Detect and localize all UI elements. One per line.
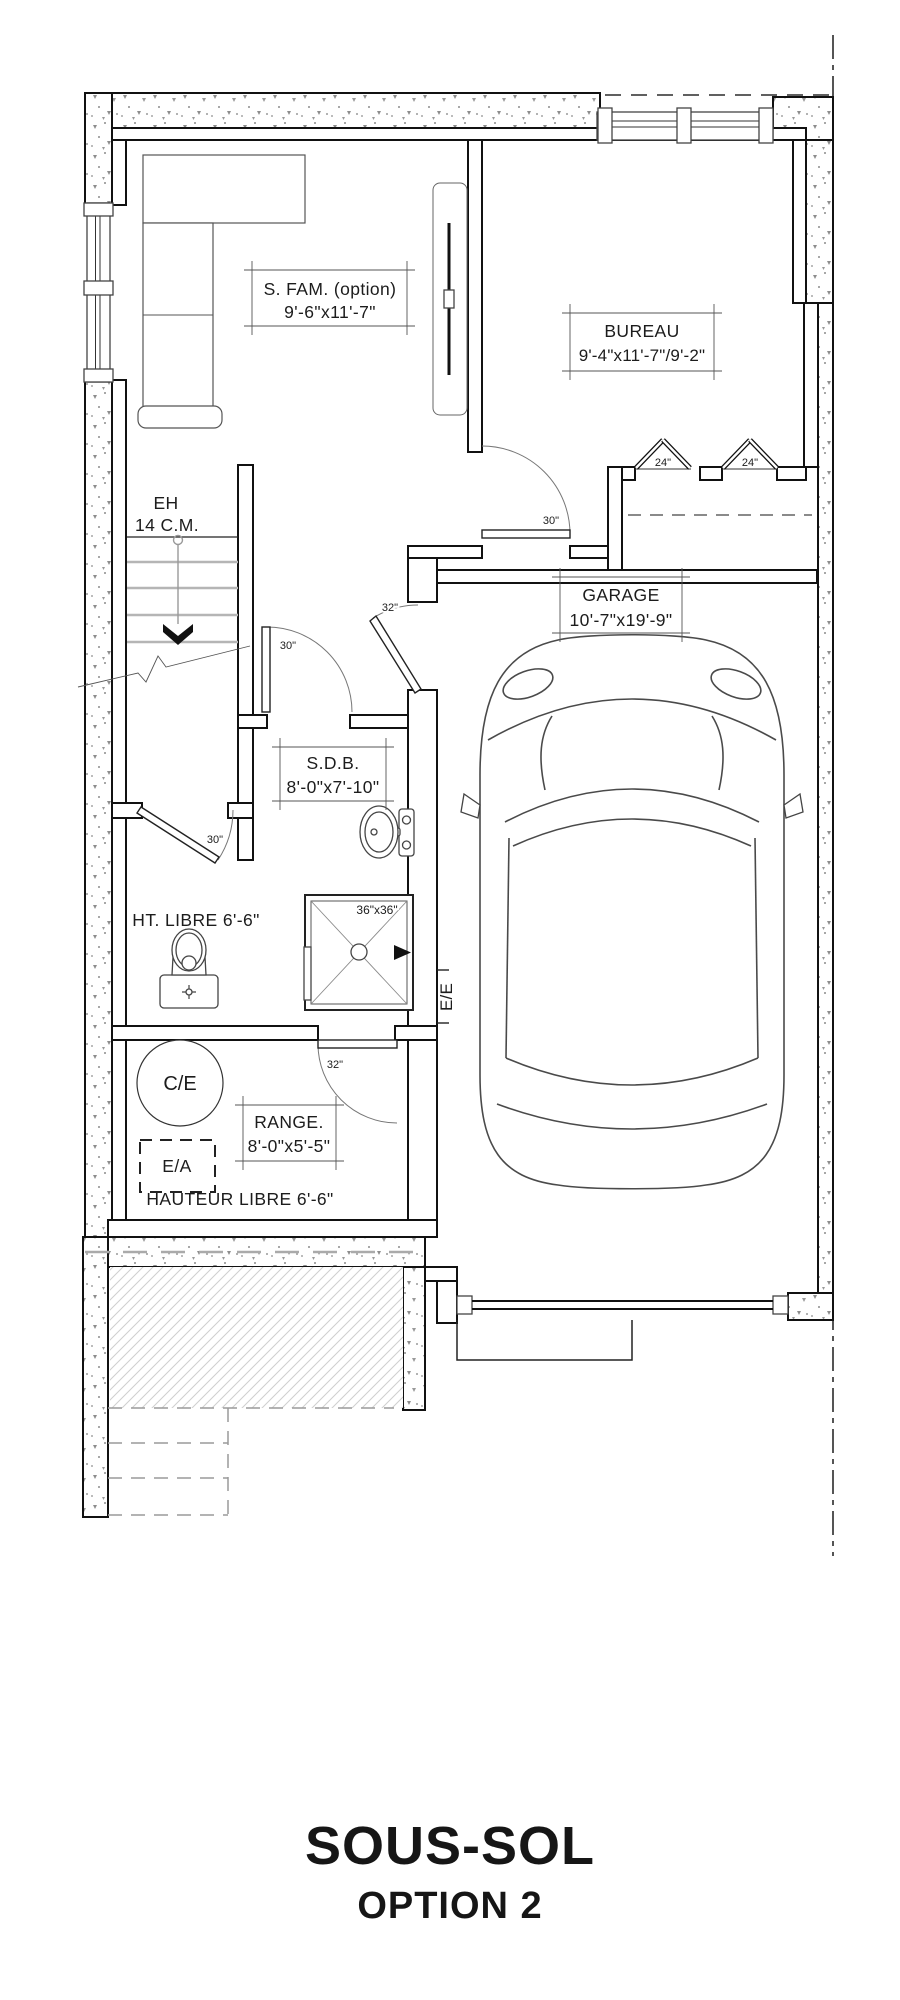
air-exchanger-label: E/A — [162, 1156, 191, 1176]
toilet-nook-door: 30" — [137, 807, 233, 863]
plan-title: SOUS-SOL — [305, 1816, 595, 1876]
label-bureau: BUREAU 9'-4"x11'-7"/9'-2" — [562, 304, 722, 380]
electrical-label: E/E — [437, 983, 456, 1011]
electrical-panel: E/E — [437, 970, 456, 1023]
air-exchanger: E/A — [140, 1140, 215, 1192]
tv-unit — [433, 183, 467, 415]
garage-dims: 10'-7"x19'-9" — [569, 610, 672, 630]
storage-height-label: HAUTEUR LIBRE 6'-6" — [146, 1189, 333, 1209]
garage-entry-door: 32" — [370, 602, 421, 693]
bureau-dims: 9'-4"x11'-7"/9'-2" — [579, 346, 706, 365]
range-name: RANGE. — [254, 1112, 324, 1132]
toilet-door-size: 30" — [207, 834, 223, 846]
closet-door-right-size: 24" — [742, 457, 758, 469]
mirror-left — [461, 794, 480, 818]
water-heater-label: C/E — [163, 1073, 196, 1095]
range-dims: 8'-0"x5'-5" — [248, 1136, 331, 1156]
s-fam-dims: 9'-6"x11'-7" — [284, 302, 376, 322]
plan-subtitle: OPTION 2 — [357, 1885, 542, 1927]
bureau-top-window — [597, 108, 773, 143]
label-range: RANGE. 8'-0"x5'-5" — [235, 1096, 344, 1170]
floor-plan-drawing: 24" 24" 30" 30" 30" 32" 32" — [0, 0, 900, 2000]
family-room-door: 30" — [482, 446, 570, 538]
stair-label: EH — [153, 493, 178, 513]
family-door-size: 30" — [543, 515, 559, 527]
garage-door — [457, 1296, 788, 1314]
storage-door-size: 32" — [327, 1059, 343, 1071]
label-s-fam: S. FAM. (option) 9'-6"x11'-7" — [244, 261, 415, 335]
shower-size-label: 36"x36" — [356, 903, 397, 917]
mirror-right — [784, 794, 803, 818]
garage-name: GARAGE — [582, 585, 659, 605]
water-heater: C/E — [137, 1040, 223, 1126]
sdb-dims: 8'-0"x7'-10" — [287, 777, 380, 797]
stair-risers-label: 14 C.M. — [135, 515, 199, 535]
porch-slab — [85, 1252, 425, 1408]
storage-room-door: 32" — [318, 1040, 397, 1123]
garage-stoop — [457, 1320, 632, 1360]
bathroom-door: 30" — [262, 627, 352, 712]
left-window — [84, 203, 113, 382]
garage-entry-door-size: 32" — [382, 602, 398, 614]
sdb-name: S.D.B. — [307, 753, 360, 773]
sink — [360, 806, 414, 858]
toilet — [160, 929, 218, 1008]
floor-plan-page: 24" 24" 30" 30" 30" 32" 32" — [0, 0, 900, 2000]
s-fam-name: S. FAM. (option) — [264, 279, 397, 299]
bathroom-door-size: 30" — [280, 640, 296, 652]
toilet-height-label: HT. LIBRE 6'-6" — [132, 910, 259, 930]
shower: 36"x36" — [304, 895, 413, 1010]
bureau-name: BUREAU — [604, 321, 679, 341]
exterior-steps-dashed — [108, 1408, 394, 1515]
car — [461, 635, 803, 1189]
closet-door-left-size: 24" — [655, 457, 671, 469]
label-sdb: S.D.B. 8'-0"x7'-10" — [272, 738, 394, 810]
